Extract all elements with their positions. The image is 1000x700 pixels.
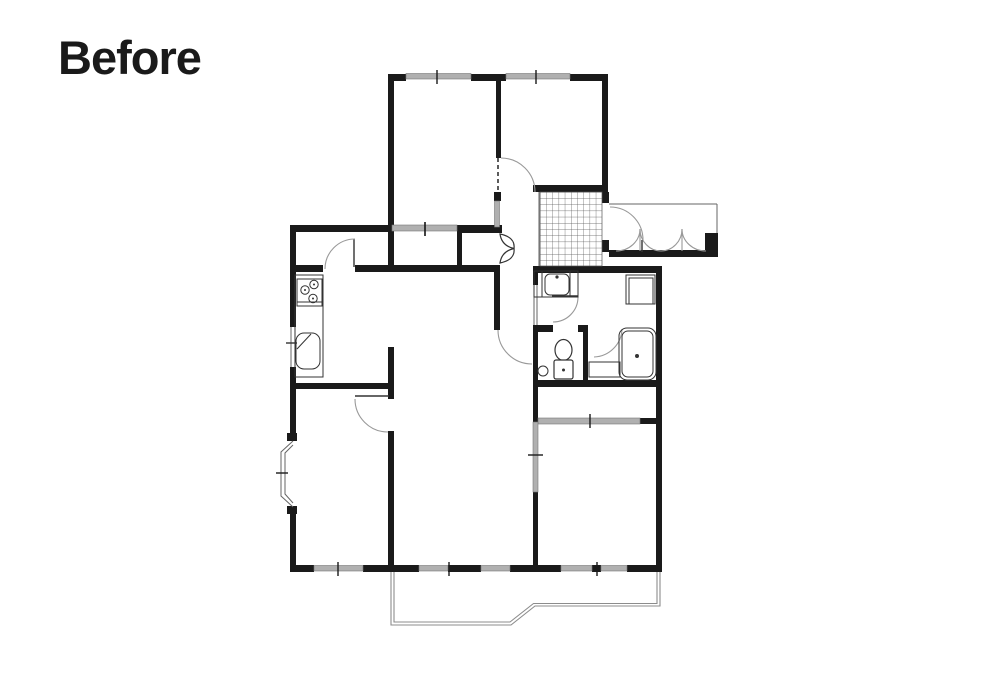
window-bar — [506, 74, 570, 80]
stove-burner — [313, 284, 315, 286]
wall — [533, 492, 538, 572]
wall — [290, 510, 296, 572]
entry-double-folding-door — [640, 229, 661, 251]
wall — [363, 565, 419, 572]
bay-window — [276, 433, 297, 514]
kitchen-sink — [297, 334, 311, 349]
window-bar — [419, 566, 448, 572]
pantry-door-arc — [325, 239, 355, 269]
bathtub-drain — [635, 354, 639, 358]
floor-plan — [0, 0, 1000, 700]
wall — [388, 225, 394, 272]
washbasin-faucet — [555, 275, 558, 278]
wall — [533, 380, 538, 425]
window-bar — [561, 566, 592, 572]
wall — [388, 431, 394, 572]
toilet-door-arc — [553, 297, 578, 322]
window-bar — [481, 566, 510, 572]
toilet-tank — [562, 369, 565, 372]
bay-window-cap — [287, 506, 297, 514]
hall-closet-bifold-door — [500, 234, 514, 249]
wall — [627, 565, 662, 572]
wall — [494, 192, 501, 201]
stove-burner — [312, 298, 314, 300]
entry-door-arc — [610, 207, 643, 240]
wall — [510, 565, 561, 572]
bathtub — [622, 331, 653, 377]
wall-washroom-north — [533, 266, 662, 273]
wall — [388, 347, 394, 399]
bathtub — [619, 328, 656, 380]
window-bar — [601, 566, 627, 572]
wall — [602, 74, 608, 192]
wall-toilet-bath — [583, 325, 588, 385]
wall-between-bedrooms — [496, 74, 501, 158]
wall — [290, 565, 314, 572]
sliding-closet-door — [538, 418, 640, 424]
windows-and-sliding-doors — [291, 74, 640, 572]
bath-counter — [589, 362, 620, 377]
wall-kitchen-south — [290, 383, 394, 389]
wall-corridor — [494, 265, 500, 330]
bath-door-arc — [594, 329, 622, 357]
room-door-arc — [355, 399, 388, 432]
hand-basin — [538, 366, 548, 376]
wall — [533, 325, 538, 387]
balcony-outline — [391, 572, 660, 625]
wall — [533, 325, 553, 332]
washbasin — [534, 271, 578, 297]
wall — [457, 226, 462, 269]
wall-genkan-north — [533, 185, 608, 192]
thin-panel — [495, 201, 500, 227]
wall — [355, 265, 497, 272]
wall-ticks — [338, 70, 597, 576]
wall — [602, 240, 609, 252]
corridor-door-arc — [498, 330, 532, 364]
wall — [448, 565, 481, 572]
wall — [290, 225, 392, 232]
walls — [290, 74, 718, 572]
genkan — [539, 192, 602, 266]
bay-window-glazing — [285, 445, 293, 503]
genkan-tile-grid — [540, 192, 602, 266]
window-bar — [406, 74, 471, 80]
balcony-outline — [394, 572, 657, 622]
wall — [602, 192, 609, 203]
balcony — [391, 572, 660, 625]
hall-closet-bifold-door — [500, 249, 514, 264]
sliding-partition — [533, 422, 538, 492]
kitchen-sink — [296, 333, 320, 369]
wall-porch-pillar — [705, 233, 718, 257]
bedroom-door-arc — [501, 158, 535, 192]
entry-double-folding-door — [661, 229, 682, 251]
entrance-porch — [609, 204, 717, 252]
toilet-bowl — [555, 340, 572, 361]
wall — [290, 265, 323, 272]
entry-double-folding-door — [682, 229, 706, 251]
entry-double-folding-door — [616, 229, 640, 251]
wall — [388, 74, 394, 230]
bay-window-cap — [287, 433, 297, 441]
wall — [290, 383, 296, 438]
stove-burner — [304, 289, 306, 291]
washing-machine-pan — [629, 278, 653, 304]
washing-machine-pan — [626, 275, 655, 304]
wall-closet-end — [640, 418, 658, 424]
wall — [533, 380, 662, 387]
